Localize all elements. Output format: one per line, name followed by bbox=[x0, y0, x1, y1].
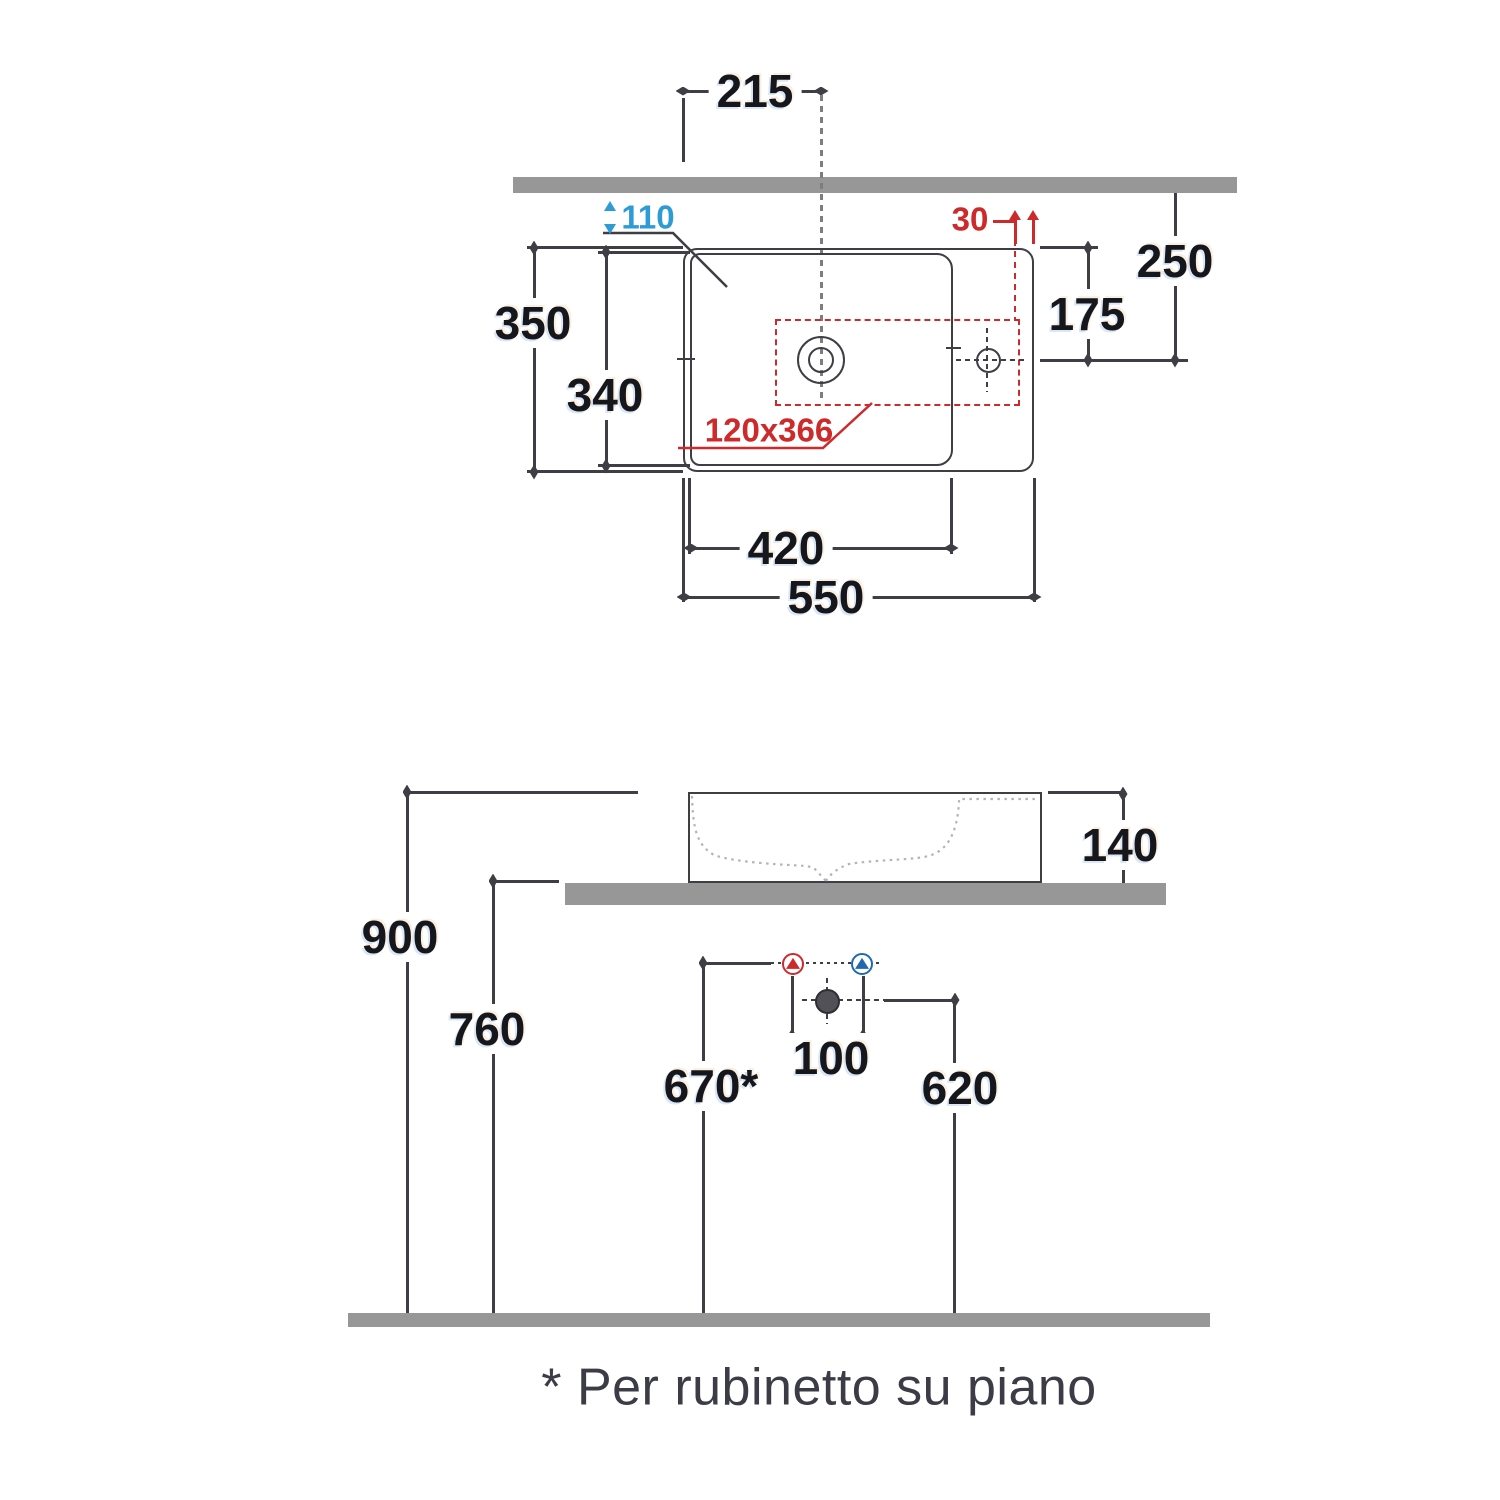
basin-front-outline bbox=[688, 792, 1042, 883]
dim-supply-height: 670* bbox=[656, 1061, 767, 1111]
ext-line bbox=[682, 98, 685, 162]
dim-basin-width: 420 bbox=[740, 523, 833, 573]
dim-line-340 bbox=[605, 252, 608, 466]
dim-rim-height: 900 bbox=[354, 912, 447, 962]
dim-tap-edge-gap: 30 bbox=[950, 203, 991, 236]
ext-line bbox=[682, 478, 685, 602]
diagram-curves bbox=[0, 0, 1500, 1500]
cold-water-icon bbox=[851, 953, 873, 975]
countertop-bar bbox=[565, 883, 1166, 905]
dim-rim-depth: 110 bbox=[619, 201, 676, 234]
dim-overall-width: 550 bbox=[780, 572, 873, 622]
ext-line bbox=[703, 962, 771, 965]
depth-arrow-icon bbox=[604, 201, 617, 234]
dim-supply-spacing: 100 bbox=[785, 1033, 878, 1083]
center-tick-left bbox=[677, 358, 695, 360]
dim-line-760 bbox=[492, 881, 495, 1313]
washbasin-technical-drawing: 215 110 30 250 175 350 340 120x366 420 5… bbox=[0, 0, 1500, 1500]
dim-cutout-size: 120x366 bbox=[703, 414, 835, 447]
ext-line bbox=[407, 791, 638, 794]
ext-line bbox=[688, 478, 691, 554]
ext-line bbox=[884, 999, 955, 1002]
red-leader-30 bbox=[993, 220, 1015, 223]
dim-overall-depth: 350 bbox=[487, 298, 580, 348]
dim-basin-height: 140 bbox=[1074, 820, 1167, 870]
ext-line bbox=[1048, 791, 1126, 794]
drain-hole-inner bbox=[808, 347, 834, 373]
floor-bar bbox=[348, 1313, 1210, 1327]
drain-outlet-icon bbox=[815, 989, 840, 1014]
ext-line bbox=[493, 880, 559, 883]
ext-line bbox=[1033, 478, 1036, 602]
ext-line bbox=[1040, 359, 1188, 362]
red-arrow-icon bbox=[1027, 210, 1039, 220]
ext-line bbox=[598, 464, 690, 467]
dim-basin-depth: 340 bbox=[559, 370, 652, 420]
ext-line bbox=[950, 478, 953, 554]
dim-tap-to-front: 175 bbox=[1041, 289, 1134, 339]
dim-drain-offset: 215 bbox=[709, 66, 802, 116]
ext-line bbox=[598, 251, 690, 254]
red-arrow-icon bbox=[1009, 210, 1021, 220]
dim-line-900 bbox=[406, 792, 409, 1313]
dim-line-350 bbox=[533, 248, 536, 472]
dim-line-670 bbox=[702, 963, 705, 1313]
hot-water-icon bbox=[782, 953, 804, 975]
dim-drain-height: 620 bbox=[914, 1063, 1007, 1113]
dim-tap-to-wall: 250 bbox=[1129, 236, 1222, 286]
dim-counter-height: 760 bbox=[441, 1004, 534, 1054]
cutout-edge-line bbox=[1014, 240, 1016, 320]
tap-hole bbox=[976, 348, 1001, 373]
dim-line-620 bbox=[953, 1000, 956, 1313]
footnote-text: * Per rubinetto su piano bbox=[541, 1359, 1096, 1416]
wall-bar-plan bbox=[513, 177, 1237, 193]
